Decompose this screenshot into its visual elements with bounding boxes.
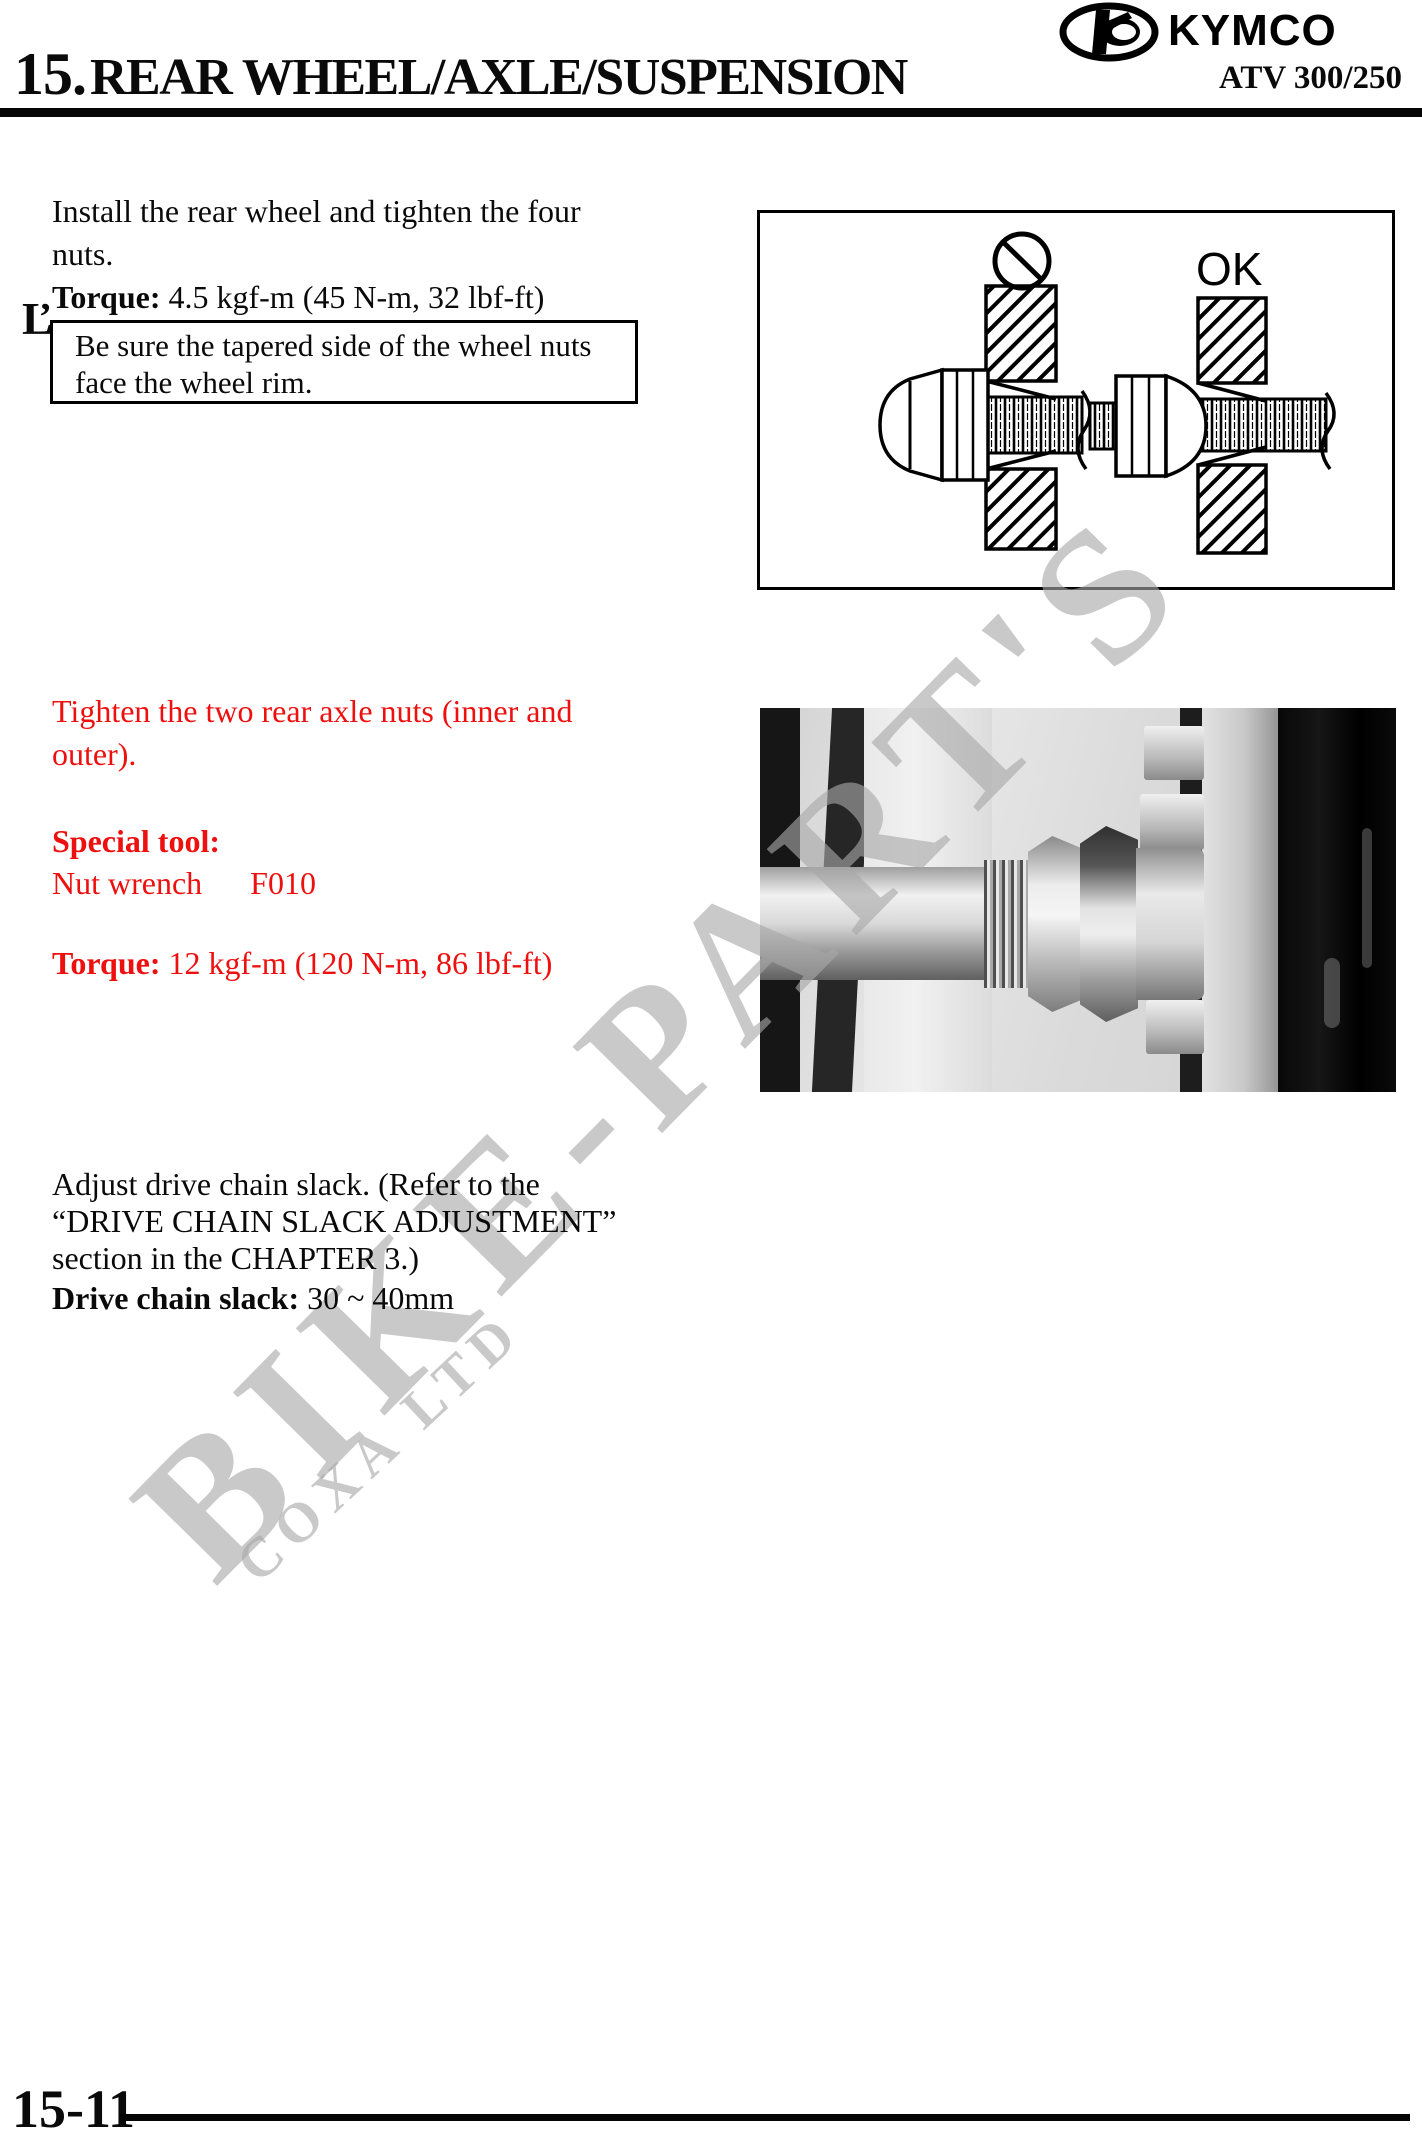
wheel-stud: [1146, 1000, 1204, 1054]
note-line: face the wheel rim.: [75, 364, 635, 401]
page-title: 15. REAR WHEEL/AXLE/SUSPENSION: [14, 40, 907, 109]
chain-slack-spec: Drive chain slack: 30 ~ 40mm: [52, 1280, 616, 1317]
axle-shaft: [760, 867, 992, 980]
wheel-stud: [1144, 726, 1204, 780]
body-line: section in the CHAPTER 3.): [52, 1240, 616, 1277]
outer-axle-nut: [1080, 826, 1138, 1022]
slack-label: Drive chain slack:: [52, 1280, 299, 1316]
wrong-nut-assembly: [880, 286, 1090, 549]
wheel-stud: [1140, 794, 1204, 850]
note-box: Be sure the tapered side of the wheel nu…: [50, 320, 638, 404]
torque-value: 4.5 kgf-m (45 N-m, 32 lbf-ft): [168, 279, 544, 315]
ok-label: OK: [1196, 243, 1263, 295]
torque-value: 12 kgf-m (120 N-m, 86 lbf-ft): [168, 945, 552, 981]
model-label: ATV 300/250: [1140, 60, 1402, 97]
axle-step-text: Tighten the two rear axle nuts (inner an…: [52, 690, 572, 776]
body-line: Tighten the two rear axle nuts (inner an…: [52, 690, 572, 733]
special-tool-line: Nut wrenchF010: [52, 862, 316, 905]
manual-page: 15. REAR WHEEL/AXLE/SUSPENSION KYMCO ATV…: [0, 0, 1422, 2136]
chapter-number: 15.: [14, 41, 86, 107]
body-line: Install the rear wheel and tighten the f…: [52, 190, 581, 233]
correct-nut-assembly: [1090, 298, 1334, 553]
watermark-subtext: COXA LTD: [224, 1299, 535, 1595]
body-line: nuts.: [52, 233, 581, 276]
body-line: “DRIVE CHAIN SLACK ADJUSTMENT”: [52, 1203, 616, 1240]
torque-label: Torque:: [52, 945, 160, 981]
inner-axle-nut: [1028, 836, 1082, 1012]
header-rule: [0, 108, 1422, 117]
hub-flange: [1202, 708, 1278, 1092]
brake-hub-dark-area: [1278, 708, 1396, 1092]
footer-rule: [120, 2114, 1410, 2121]
torque-spec: Torque: 4.5 kgf-m (45 N-m, 32 lbf-ft): [52, 276, 581, 319]
note-line: Be sure the tapered side of the wheel nu…: [75, 327, 635, 364]
axle-collar: [1136, 848, 1204, 1000]
wheel-nut-diagram: OK: [757, 210, 1395, 590]
chain-step-text: Adjust drive chain slack. (Refer to the …: [52, 1166, 616, 1317]
slack-value: 30 ~ 40mm: [307, 1280, 454, 1316]
brand-wordmark: KYMCO: [1168, 6, 1337, 56]
axle-nut-photo: [760, 708, 1396, 1092]
kymco-logo-icon: [1058, 2, 1160, 67]
body-line: outer).: [52, 733, 572, 776]
page-number: 15-11: [12, 2078, 135, 2136]
torque-label: Torque:: [52, 279, 160, 315]
tool-name: Nut wrench: [52, 865, 202, 901]
tool-code: F010: [250, 865, 316, 901]
axle-threads: [984, 860, 1032, 988]
no-entry-icon: [995, 234, 1049, 288]
chapter-title: REAR WHEEL/AXLE/SUSPENSION: [90, 49, 907, 106]
note-marker-glyph: Ľ: [22, 296, 53, 342]
special-tool-label: Special tool:: [52, 820, 220, 863]
axle-torque-spec: Torque: 12 kgf-m (120 N-m, 86 lbf-ft): [52, 942, 552, 985]
body-line: Adjust drive chain slack. (Refer to the: [52, 1166, 616, 1203]
install-step-text: Install the rear wheel and tighten the f…: [52, 190, 581, 319]
